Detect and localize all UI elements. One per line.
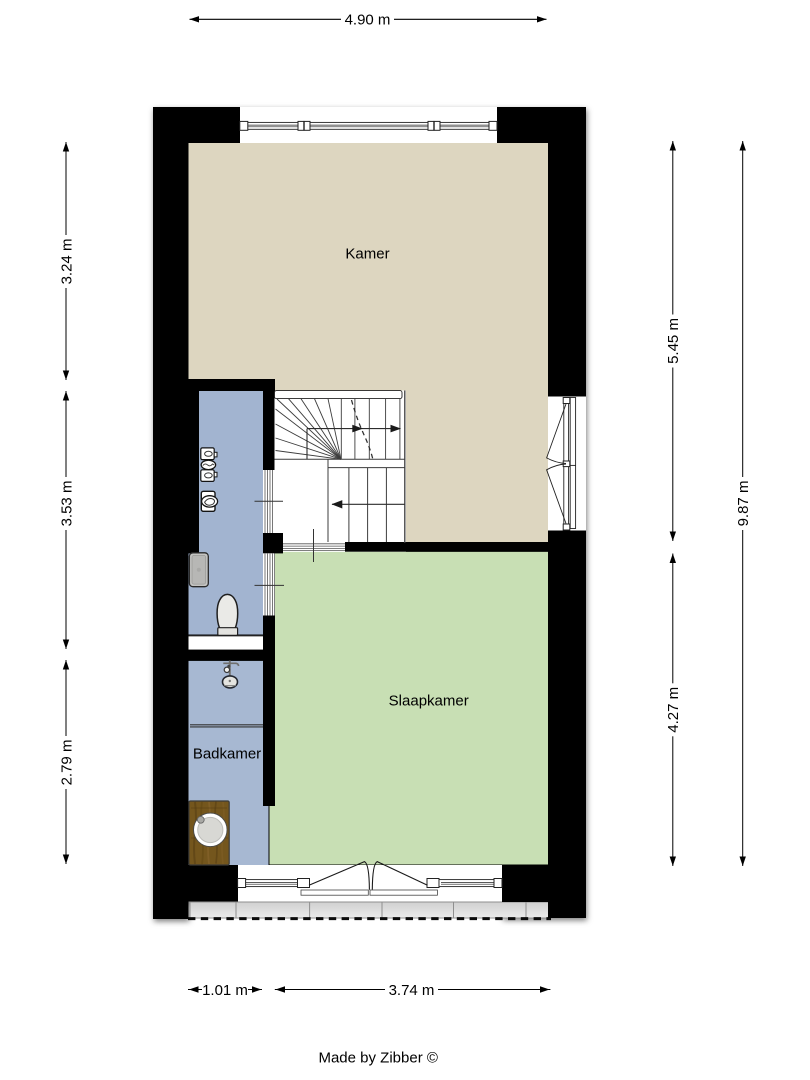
- svg-text:Made by Zibber ©: Made by Zibber ©: [318, 1050, 437, 1067]
- svg-text:3.24 m: 3.24 m: [58, 239, 75, 285]
- svg-text:5.45 m: 5.45 m: [665, 318, 682, 364]
- svg-text:1.01 m: 1.01 m: [202, 982, 248, 999]
- svg-text:Slaapkamer: Slaapkamer: [389, 693, 469, 710]
- svg-text:4.27 m: 4.27 m: [665, 687, 682, 733]
- svg-text:3.53 m: 3.53 m: [58, 481, 75, 527]
- svg-text:4.90 m: 4.90 m: [345, 12, 391, 29]
- svg-text:3.74 m: 3.74 m: [389, 982, 435, 999]
- svg-text:9.87 m: 9.87 m: [735, 481, 752, 527]
- svg-text:Kamer: Kamer: [345, 245, 389, 262]
- svg-text:2.79 m: 2.79 m: [58, 740, 75, 786]
- svg-text:Badkamer: Badkamer: [193, 746, 261, 763]
